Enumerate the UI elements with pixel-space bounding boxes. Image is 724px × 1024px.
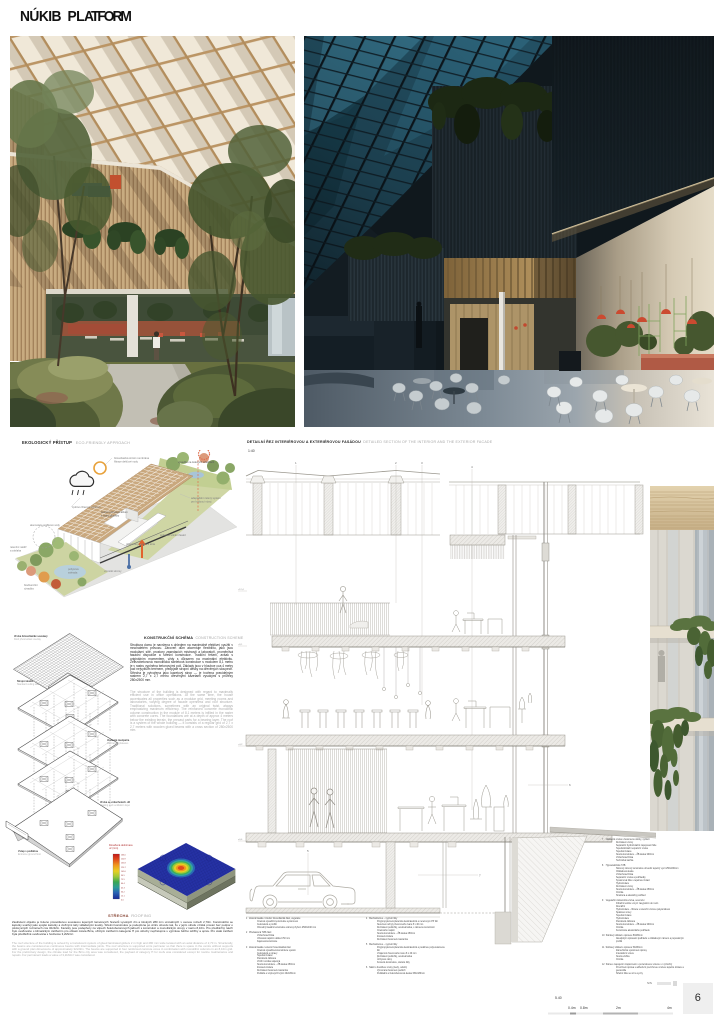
svg-text:akumulace srážkové vody: akumulace srážkové vody [30,523,61,527]
svg-text:3: 3 [421,461,423,465]
svg-text:±0,0: ±0,0 [238,839,243,841]
svg-text:zpětné chlazení výparem: zpětné chlazení výparem [72,505,101,509]
svg-text:60.4: 60.4 [121,883,125,885]
svg-text:zahrada: zahrada [68,570,78,574]
svg-text:105.6: 105.6 [121,871,126,873]
svg-text:Roof photovoltaic overlay: Roof photovoltaic overlay [14,638,42,641]
svg-text:biodiverzitní: biodiverzitní [24,583,38,587]
svg-text:vzrostlé stromy: vzrostlé stromy [104,569,122,573]
svg-text:uz (mm): uz (mm) [109,847,118,850]
svg-text:45.3: 45.3 [121,887,125,889]
svg-text:fotovoltaická stínicí membrána: fotovoltaická stínicí membrána [114,456,150,460]
svg-text:2m: 2m [616,1006,621,1010]
svg-text:+8,1: +8,1 [238,644,243,646]
svg-text:4m: 4m [667,1006,672,1010]
svg-text:15.1: 15.1 [121,896,125,898]
svg-text:120.7: 120.7 [121,867,126,869]
svg-text:pro budoucí vývoj: pro budoucí vývoj [191,499,212,503]
svg-text:75.5: 75.5 [121,879,125,881]
svg-text:30.2: 30.2 [121,891,125,893]
svg-text:Mezzanine plateaus: Mezzanine plateaus [107,742,129,745]
svg-text:adaptabilní zelený systém: adaptabilní zelený systém [191,496,221,500]
svg-text:pobytová: pobytová [68,567,79,571]
svg-text:Entrance ground floor: Entrance ground floor [18,853,41,856]
svg-text:s vodní plochou: s vodní plochou [101,513,120,517]
svg-text:7: 7 [479,874,481,878]
svg-text:0.0: 0.0 [121,900,124,902]
svg-text:135.8: 135.8 [121,863,126,865]
svg-text:5: 5 [307,849,309,853]
svg-text:1: 1 [295,461,297,465]
svg-text:a závlaha: a závlaha [10,548,22,552]
svg-text:+4,2: +4,2 [238,744,243,746]
svg-text:166.0: 166.0 [121,855,126,857]
svg-text:retenční nádrž: retenční nádrž [10,545,27,549]
svg-text:filtrace dešťové vody: filtrace dešťové vody [114,459,139,463]
svg-text:Standard ceiling slab: Standard ceiling slab [17,683,40,686]
svg-text:0.4m: 0.4m [568,1006,576,1010]
svg-text:jednotné stínění fasád: jednotné stínění fasád [159,533,186,537]
svg-text:4: 4 [471,465,473,469]
svg-text:zelené pobytové atrium: zelené pobytové atrium [101,510,128,514]
svg-text:výsadba na zelených střechách: výsadba na zelených střechách [178,460,215,464]
svg-text:přirozené provětrání atria: přirozené provětrání atria [126,542,156,546]
svg-text:90.5: 90.5 [121,875,125,877]
svg-text:150.9: 150.9 [121,859,126,861]
svg-text:+12,4: +12,4 [238,589,244,591]
svg-text:2: 2 [395,461,397,465]
svg-text:výsadba: výsadba [24,586,34,590]
svg-text:0.8m: 0.8m [580,1006,588,1010]
svg-text:Heating and ventilation layer: Heating and ventilation layer [100,804,130,807]
svg-text:6: 6 [569,783,571,787]
